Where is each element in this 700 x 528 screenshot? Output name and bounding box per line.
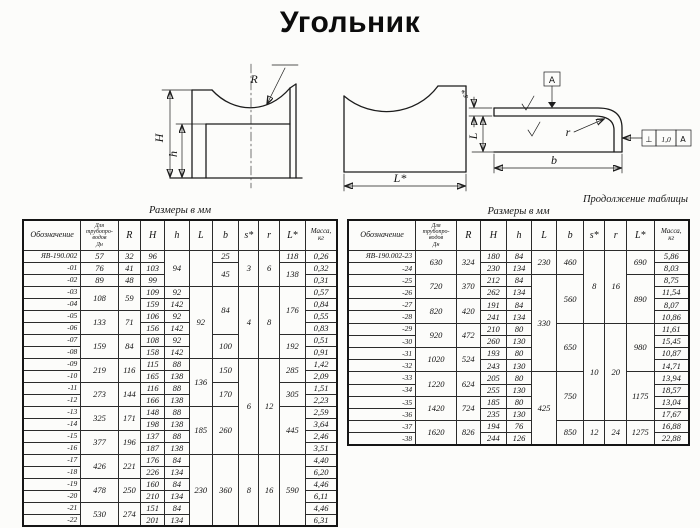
table-cell: 250 [118, 478, 140, 502]
table-cell: 130 [507, 360, 532, 372]
table-cell: 478 [81, 478, 118, 502]
table-cell: 243 [480, 360, 507, 372]
table-cell: 138 [279, 262, 305, 286]
table-cell: 84 [507, 299, 532, 311]
table-cell: 106 [140, 310, 164, 322]
table-cell: 262 [480, 287, 507, 299]
table-cell: 2,09 [306, 370, 337, 382]
table-cell: 650 [557, 323, 584, 372]
table-cell: -01 [23, 262, 81, 274]
table-cell: 160 [140, 478, 164, 490]
table-cell: -21 [23, 502, 81, 514]
table-cell [189, 250, 212, 286]
table-cell: 187 [140, 442, 164, 454]
table-cell: 244 [480, 433, 507, 445]
table-cell: 198 [140, 418, 164, 430]
column-header: b [212, 220, 238, 250]
table-cell: 241 [480, 311, 507, 323]
table-cell: 192 [279, 334, 305, 358]
table-cell: 219 [81, 358, 118, 382]
table-cell: 255 [480, 384, 507, 396]
table-cell: 6,31 [306, 514, 337, 526]
table-row: ЯВ-190.0025732969425361180,26 [23, 250, 337, 262]
table-cell: 16 [605, 250, 627, 323]
table-cell: 2,46 [306, 430, 337, 442]
table-cell: 94 [165, 250, 189, 286]
table-cell: -37 [348, 421, 416, 433]
table-cell: -06 [23, 322, 81, 334]
table-cell: 57 [81, 250, 118, 262]
table-cell: 138 [165, 370, 189, 382]
table-cell: -24 [348, 262, 416, 274]
column-header: Обозначение [348, 220, 416, 250]
table-cell: 826 [457, 421, 481, 445]
table-cell: -35 [348, 396, 416, 408]
column-header: R [118, 220, 140, 250]
table-cell: 116 [140, 382, 164, 394]
table-cell: 22,88 [654, 433, 689, 445]
column-header: R [457, 220, 481, 250]
column-header: Для трубопро- водов Дн [416, 220, 457, 250]
table-cell: -16 [23, 442, 81, 454]
table-row: -0310859109929284481760,57 [23, 286, 337, 298]
table-cell: -26 [348, 287, 416, 299]
table-cell: -14 [23, 418, 81, 430]
table-cell: -10 [23, 370, 81, 382]
table-cell: 330 [531, 274, 557, 372]
table-cell: 1620 [416, 421, 457, 445]
table-cell: 8,07 [654, 299, 689, 311]
page-title: Угольник [0, 6, 700, 40]
table-cell: 260 [212, 406, 238, 454]
table-cell: 84 [165, 454, 189, 466]
table-cell: -05 [23, 310, 81, 322]
table-cell: 460 [557, 250, 584, 274]
table-cell: 159 [140, 298, 164, 310]
table-row: -17426221176842303608165904,40 [23, 454, 337, 466]
table-cell: 210 [140, 490, 164, 502]
table-cell: 8 [239, 454, 259, 526]
table-cell: 158 [140, 346, 164, 358]
table-cell: 88 [165, 406, 189, 418]
table-cell: 274 [118, 502, 140, 526]
left-table-caption: Размеры в мм [22, 205, 338, 216]
table-cell: 1275 [626, 421, 654, 445]
table-cell: 426 [81, 454, 118, 478]
table-cell: 226 [140, 466, 164, 478]
table-cell: 11,54 [654, 287, 689, 299]
table-cell: 6,11 [306, 490, 337, 502]
table-cell: 425 [531, 372, 557, 445]
table-cell: -33 [348, 372, 416, 384]
table-cell: 8,03 [654, 262, 689, 274]
table-row: -09219116115881361506122851,42 [23, 358, 337, 370]
table-cell: 24 [605, 421, 627, 445]
table-cell: 134 [165, 466, 189, 478]
table-cell: 10,87 [654, 348, 689, 360]
table-cell: 360 [212, 454, 238, 526]
table-cell: 325 [81, 406, 118, 430]
table-cell: 524 [457, 348, 481, 372]
table-cell: -07 [23, 334, 81, 346]
column-header: H [140, 220, 164, 250]
table-cell: 980 [626, 323, 654, 372]
dim-label-r: r [566, 125, 571, 139]
tolerance-value: 1,0 [661, 135, 671, 144]
table-cell: 8,75 [654, 274, 689, 286]
table-cell: 724 [457, 396, 481, 420]
table-cell: 0,91 [306, 346, 337, 358]
table-cell: 99 [140, 274, 164, 286]
table-cell: -11 [23, 382, 81, 394]
table-cell: 4,40 [306, 454, 337, 466]
table-cell: ЯВ-190.002-23 [348, 250, 416, 262]
table-cell: 377 [81, 430, 118, 454]
table-cell: 134 [507, 311, 532, 323]
table-cell: 0,32 [306, 262, 337, 274]
table-cell: 230 [480, 262, 507, 274]
table-cell: 134 [165, 514, 189, 526]
table-cell: 144 [118, 382, 140, 406]
table-cell: 1175 [626, 372, 654, 421]
table-cell: 92 [165, 310, 189, 322]
header-row: ОбозначениеДля трубопро- водов ДнRHhLbs*… [348, 220, 689, 250]
table-cell: 2,23 [306, 394, 337, 406]
table-cell: 14,71 [654, 360, 689, 372]
column-header: L* [279, 220, 305, 250]
table-cell: 16 [259, 454, 279, 526]
table-cell: 165 [140, 370, 164, 382]
document-page: Угольник H h R [0, 0, 700, 528]
column-header: h [165, 220, 189, 250]
table-cell: 890 [626, 274, 654, 323]
table-cell: 115 [140, 358, 164, 370]
table-cell: 8 [259, 286, 279, 358]
table-cell: 13,04 [654, 396, 689, 408]
table-cell: 0,31 [306, 274, 337, 286]
table-cell: 324 [457, 250, 481, 274]
roughness-icon [528, 122, 540, 136]
column-header: r [605, 220, 627, 250]
table-cell: -08 [23, 346, 81, 358]
table-cell: 170 [212, 382, 238, 406]
table-cell: 59 [118, 286, 140, 310]
table-cell: 84 [165, 502, 189, 514]
table-cell: 130 [507, 384, 532, 396]
table-cell: 159 [81, 334, 118, 358]
table-cell: 820 [416, 299, 457, 323]
table-cell: 15,45 [654, 335, 689, 347]
table-cell: 16,88 [654, 421, 689, 433]
table-cell: 76 [81, 262, 118, 274]
column-header: Для трубопро- водов Дн [81, 220, 118, 250]
table-cell: 530 [81, 502, 118, 526]
table-cell: -29 [348, 323, 416, 335]
table-cell: 92 [165, 286, 189, 298]
datum-label: A [549, 76, 556, 86]
table-cell: 10,86 [654, 311, 689, 323]
table-cell: 96 [140, 250, 164, 262]
table-cell: 76 [507, 421, 532, 433]
table-cell: 12 [259, 358, 279, 454]
dim-label-h: h [166, 151, 180, 157]
table-cell: 6,20 [306, 466, 337, 478]
header-row: ОбозначениеДля трубопро- водов ДнRHhLbs*… [23, 220, 337, 250]
table-cell: 1,51 [306, 382, 337, 394]
table-cell: 136 [189, 358, 212, 406]
table-cell: 80 [507, 348, 532, 360]
table-row: -33122062420580425750117513,94 [348, 372, 689, 384]
table-cell: 4,46 [306, 478, 337, 490]
table-cell: 180 [480, 250, 507, 262]
column-header: h [507, 220, 532, 250]
table-cell: 1,42 [306, 358, 337, 370]
table-cell: -17 [23, 454, 81, 466]
table-cell: 850 [557, 421, 584, 445]
table-cell: 472 [457, 323, 481, 347]
table-cell: 84 [118, 334, 140, 358]
table-cell: -12 [23, 394, 81, 406]
table-cell: 590 [279, 454, 305, 526]
table-cell: 25 [212, 250, 238, 262]
table-cell: 13,94 [654, 372, 689, 384]
table-cell: 624 [457, 372, 481, 396]
table-row: -13325171148881852604452,59 [23, 406, 337, 418]
column-header: s* [583, 220, 605, 250]
table-cell: 370 [457, 274, 481, 298]
table-cell: ЯВ-190.002 [23, 250, 81, 262]
table-cell: 273 [81, 382, 118, 406]
table-cell: 201 [140, 514, 164, 526]
table-cell: 84 [212, 286, 238, 334]
table-cell: 194 [480, 421, 507, 433]
table-cell: 260 [480, 335, 507, 347]
table-cell: 137 [140, 430, 164, 442]
dimensions-table-left: ОбозначениеДля трубопро- водов ДнRHhLbs*… [22, 219, 338, 527]
table-cell: 1020 [416, 348, 457, 372]
table-row: -371620826194768501224127516,88 [348, 421, 689, 433]
table-cell: 92 [165, 334, 189, 346]
table-cell: 17,67 [654, 408, 689, 420]
table-cell: 116 [118, 358, 140, 382]
table-cell: -15 [23, 430, 81, 442]
table-cell: 11,61 [654, 323, 689, 335]
table-cell: 212 [480, 274, 507, 286]
column-header: L [189, 220, 212, 250]
table-cell: 84 [507, 274, 532, 286]
table-cell: 196 [118, 430, 140, 454]
table-cell: -25 [348, 274, 416, 286]
table-cell: 4 [239, 286, 259, 358]
table-cell: 305 [279, 382, 305, 406]
table-cell: 3 [239, 250, 259, 286]
table-cell: 80 [507, 372, 532, 384]
table-cell: 71 [118, 310, 140, 334]
table-cell: 103 [140, 262, 164, 274]
table-cell: 185 [480, 396, 507, 408]
table-cell: -27 [348, 299, 416, 311]
table-cell: 100 [212, 334, 238, 358]
table-cell: 690 [626, 250, 654, 274]
table-cell: 0,84 [306, 298, 337, 310]
table-cell: 134 [507, 262, 532, 274]
table-cell: 720 [416, 274, 457, 298]
table-cell: -02 [23, 274, 81, 286]
table-cell: 6 [239, 358, 259, 454]
table-cell: 45 [212, 262, 238, 286]
table-cell: 1220 [416, 372, 457, 396]
column-header: r [259, 220, 279, 250]
table-cell: 630 [416, 250, 457, 274]
table-cell: 420 [457, 299, 481, 323]
table-cell: 80 [507, 396, 532, 408]
table-cell: 3,64 [306, 418, 337, 430]
table-cell: 560 [557, 274, 584, 323]
table-cell: 126 [507, 433, 532, 445]
column-header: Обозначение [23, 220, 81, 250]
table-cell: 108 [140, 334, 164, 346]
table-cell: -19 [23, 478, 81, 490]
table-cell: 88 [165, 358, 189, 370]
table-cell: 130 [507, 335, 532, 347]
table-cell: 285 [279, 358, 305, 382]
table-cell: 41 [118, 262, 140, 274]
dim-label-Lstar: L* [393, 171, 407, 185]
table-cell: 176 [140, 454, 164, 466]
table-cell: 230 [531, 250, 557, 274]
table-cell: 88 [165, 382, 189, 394]
table-cell: 142 [165, 322, 189, 334]
table-cell: 193 [480, 348, 507, 360]
dim-label-L: L [466, 132, 480, 140]
table-cell: 134 [165, 490, 189, 502]
table-cell: -28 [348, 311, 416, 323]
table-cell: 6 [259, 250, 279, 286]
column-header: Масса, кг [306, 220, 337, 250]
column-header: Масса, кг [654, 220, 689, 250]
table-cell: 32 [118, 250, 140, 262]
table-cell: 205 [480, 372, 507, 384]
table-cell: 185 [189, 406, 212, 454]
table-row: -2992047221080650102098011,61 [348, 323, 689, 335]
table-cell: 1420 [416, 396, 457, 420]
table-cell: -38 [348, 433, 416, 445]
table-cell: 0,51 [306, 334, 337, 346]
table-cell: 10 [583, 323, 605, 421]
column-header: L* [626, 220, 654, 250]
table-cell: 118 [279, 250, 305, 262]
table-cell: 12 [583, 421, 605, 445]
table-cell: 8 [583, 250, 605, 323]
tolerance-datum: A [680, 135, 686, 144]
table-cell: 151 [140, 502, 164, 514]
table-cell: 0,57 [306, 286, 337, 298]
dim-label-R: R [249, 72, 258, 86]
table-cell: 0,55 [306, 310, 337, 322]
column-header: s* [239, 220, 259, 250]
figure-side-view: H h R [148, 60, 318, 195]
table-cell: -34 [348, 384, 416, 396]
table-cell: 92 [189, 286, 212, 358]
table-cell: 150 [212, 358, 238, 382]
column-header: b [557, 220, 584, 250]
table-cell: 138 [165, 394, 189, 406]
table-cell: 445 [279, 406, 305, 454]
table-cell: 84 [165, 478, 189, 490]
table-cell: -32 [348, 360, 416, 372]
table-cell: -22 [23, 514, 81, 526]
table-cell: 134 [507, 287, 532, 299]
right-table-caption: Размеры в мм [367, 206, 670, 217]
table-cell: -20 [23, 490, 81, 502]
table-cell: -03 [23, 286, 81, 298]
dim-label-b: b [551, 153, 557, 167]
table-cell: 171 [118, 406, 140, 430]
table-cell: -04 [23, 298, 81, 310]
table-cell: 2,59 [306, 406, 337, 418]
table-cell: 166 [140, 394, 164, 406]
table-row: ЯВ-190.002-23630324180842304608166905,86 [348, 250, 689, 262]
table-cell: 142 [165, 346, 189, 358]
table-row: -11273144116881703051,51 [23, 382, 337, 394]
table-cell: -30 [348, 335, 416, 347]
table-cell: -31 [348, 348, 416, 360]
table-cell: 3,51 [306, 442, 337, 454]
table-cell: 221 [118, 454, 140, 478]
table-cell: 84 [507, 250, 532, 262]
table-cell: 156 [140, 322, 164, 334]
table-cell: 108 [81, 286, 118, 310]
column-header: H [480, 220, 507, 250]
table-row: -0715984108921001920,51 [23, 334, 337, 346]
table-cell: 138 [165, 418, 189, 430]
table-cell: 230 [189, 454, 212, 526]
dimensions-table-right: ОбозначениеДля трубопро- водов ДнRHhLbs*… [347, 219, 690, 446]
table-cell: 130 [507, 408, 532, 420]
table-cell: 920 [416, 323, 457, 347]
table-cell: 0,26 [306, 250, 337, 262]
table-cell: 138 [165, 442, 189, 454]
table-cell: 176 [279, 286, 305, 334]
dim-label-s: s* [460, 90, 470, 99]
table-cell: 750 [557, 372, 584, 421]
table-cell: 191 [480, 299, 507, 311]
table-cell: 88 [165, 430, 189, 442]
table-cell: 89 [81, 274, 118, 286]
table-cell: -18 [23, 466, 81, 478]
datum-triangle [548, 102, 556, 108]
table-cell: 148 [140, 406, 164, 418]
table-cell: 210 [480, 323, 507, 335]
table-cell: 48 [118, 274, 140, 286]
table-cell: -36 [348, 408, 416, 420]
table-cell: 133 [81, 310, 118, 334]
table-cell: 235 [480, 408, 507, 420]
tolerance-symbol: ⊥ [646, 135, 653, 144]
table-row: -25720370212843305608908,75 [348, 274, 689, 286]
dim-label-H: H [152, 132, 166, 143]
table-cell: 0,83 [306, 322, 337, 334]
table-cell: 18,57 [654, 384, 689, 396]
column-header: L [531, 220, 557, 250]
table-cell: 80 [507, 323, 532, 335]
table-cell: 142 [165, 298, 189, 310]
continuation-note: Продолжение таблицы [400, 194, 688, 205]
table-cell: -13 [23, 406, 81, 418]
table-cell: 109 [140, 286, 164, 298]
table-cell: 4,46 [306, 502, 337, 514]
table-cell: 5,86 [654, 250, 689, 262]
